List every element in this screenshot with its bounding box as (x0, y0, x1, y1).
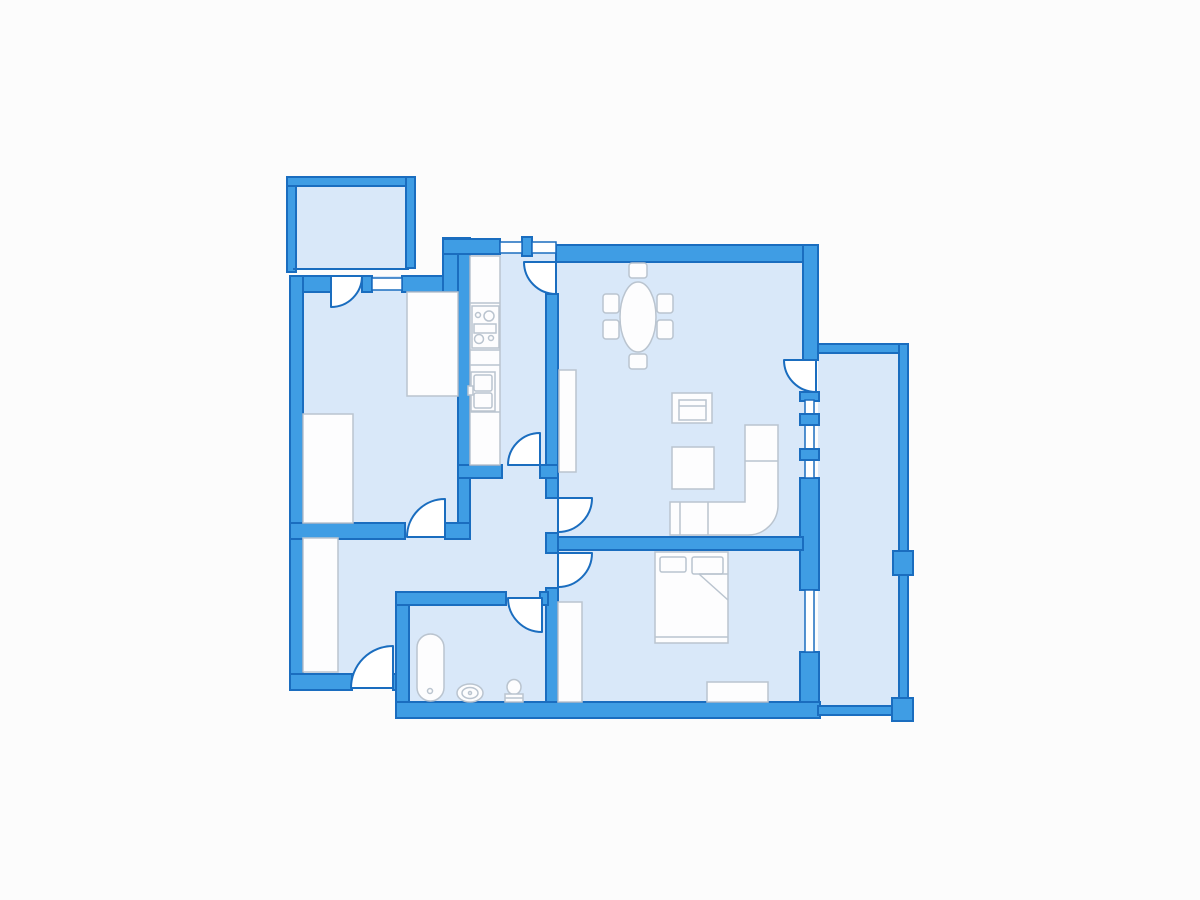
floor-plan (0, 0, 1200, 900)
window-bedroom (805, 590, 814, 652)
floor-balcony-top-left (294, 184, 408, 270)
wall-room-a-top-stub (362, 276, 372, 292)
floor-plan-canvas (0, 0, 1200, 900)
stove-control-panel (474, 324, 496, 333)
wall-bedroom-bathroom (546, 588, 558, 714)
bed-pillow-1 (660, 557, 686, 572)
bath-sink-drain (469, 692, 472, 695)
furniture-dining-chair-right-2 (657, 320, 673, 339)
furniture-dining-chair-top (629, 263, 647, 278)
wall-between-hall-doors (546, 533, 558, 553)
wall-balcony-r-top (818, 344, 908, 353)
kitchen-sink-basin-1 (474, 375, 492, 391)
wall-kitchen-top (443, 239, 500, 254)
wall-kitchen-bottom-left (458, 465, 502, 478)
furniture-dining-chair-right-1 (657, 294, 673, 313)
furniture-bedroom-wardrobe (558, 602, 582, 702)
wall-room-a-bottom-left (290, 523, 405, 539)
furniture-armchair (672, 447, 714, 489)
furniture-living-shelf (559, 370, 576, 472)
furniture-kitchen-counter (470, 256, 500, 465)
furniture-dresser (707, 682, 768, 702)
furniture-dining-table (620, 282, 656, 352)
wall-right-upper (803, 245, 818, 360)
furniture-toilet-bowl (507, 680, 521, 695)
window-room-a-balcony (372, 278, 402, 290)
wall-room-a-bottom-right (445, 523, 470, 539)
furniture-dining-chair-bottom (629, 354, 647, 369)
wall-balcony-r-right (899, 344, 908, 712)
window-kitchen-1 (500, 242, 522, 253)
furniture-room-a-wardrobe (303, 414, 353, 523)
wall-right-mid (800, 478, 819, 590)
stove-burner-1 (476, 313, 481, 318)
stove-burner-3 (475, 335, 484, 344)
wall-bottom-exterior (396, 702, 820, 718)
wall-kitchen-top-block (522, 237, 532, 256)
window-mullion-2 (800, 449, 819, 460)
floor-balcony-right (818, 351, 902, 711)
furniture-hall-wardrobe (303, 538, 338, 672)
window-living-balcony (805, 400, 814, 478)
wall-living-top (556, 245, 818, 262)
wall-balcony-r-pillar (893, 551, 913, 575)
wall-balcony-tl-left (287, 177, 296, 272)
wall-hall-bottom-left (290, 674, 352, 690)
stove-burner-2 (484, 311, 494, 321)
wall-left-exterior (290, 276, 303, 690)
stove-burner-4 (489, 336, 494, 341)
wall-balcony-tl-right (406, 177, 415, 268)
bed-pillow-2 (692, 557, 723, 574)
kitchen-sink-faucet (468, 386, 473, 395)
furniture-room-a-bed (407, 292, 458, 396)
wall-balcony-tl-top (287, 177, 415, 186)
wall-living-bedroom-divider (558, 537, 803, 550)
wall-bathroom-top (396, 592, 506, 605)
wall-bathroom-left (396, 592, 409, 718)
window-mullion-1 (800, 414, 819, 425)
wall-kitchen-bottom-right (540, 465, 558, 478)
furniture-dining-chair-left-2 (603, 320, 619, 339)
kitchen-sink-basin-2 (474, 393, 492, 408)
furniture-dining-chair-left-1 (603, 294, 619, 313)
wall-balcony-r-corner (892, 698, 913, 721)
bathtub-drain (428, 689, 433, 694)
window-kitchen-2 (532, 242, 556, 253)
tv-screen (679, 400, 706, 420)
